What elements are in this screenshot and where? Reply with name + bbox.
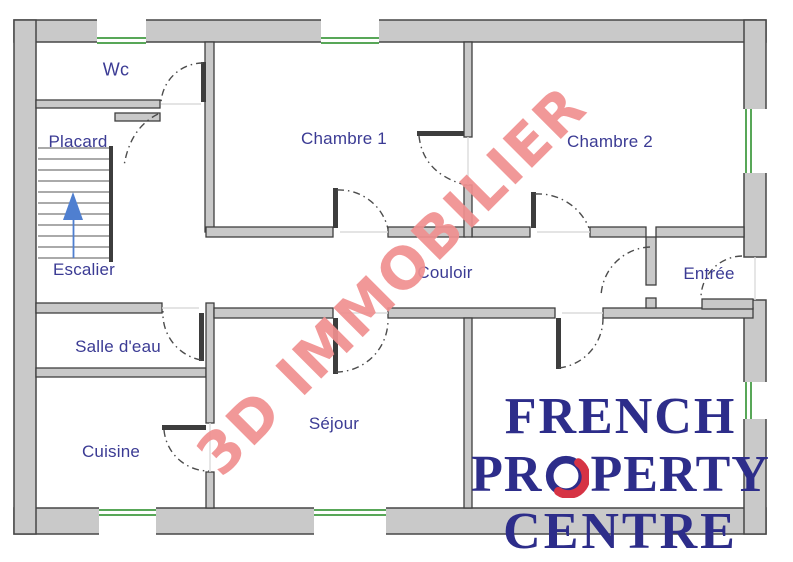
- room-label-wc: Wc: [103, 60, 129, 81]
- stairs: [38, 146, 113, 262]
- room-label-chambre-1: Chambre 1: [301, 129, 387, 149]
- logo-line-centre: CENTRE: [448, 506, 793, 558]
- floor-plan-page: Wc Placard Escalier Salle d'eau Cuisine …: [0, 0, 793, 562]
- room-label-salle-d-eau: Salle d'eau: [75, 337, 161, 357]
- door-leaves: [162, 62, 561, 430]
- room-label-placard: Placard: [48, 132, 107, 152]
- room-label-cuisine: Cuisine: [82, 442, 140, 462]
- logo-line-french: FRENCH: [448, 391, 793, 443]
- logo-line-property: PR PERTY: [448, 449, 793, 501]
- room-label-escalier: Escalier: [53, 260, 115, 280]
- logo-property-prefix: PR: [471, 449, 542, 501]
- logo-o-mark: [543, 452, 589, 498]
- room-label-sejour: Séjour: [309, 414, 359, 434]
- logo-property-suffix: PERTY: [590, 449, 769, 501]
- room-label-entree: Entrée: [683, 264, 734, 284]
- logo-o-mark-icon: [543, 452, 589, 498]
- agency-logo: FRENCH PR PERTY CENTRE: [448, 391, 793, 558]
- stair-rail: [109, 146, 113, 262]
